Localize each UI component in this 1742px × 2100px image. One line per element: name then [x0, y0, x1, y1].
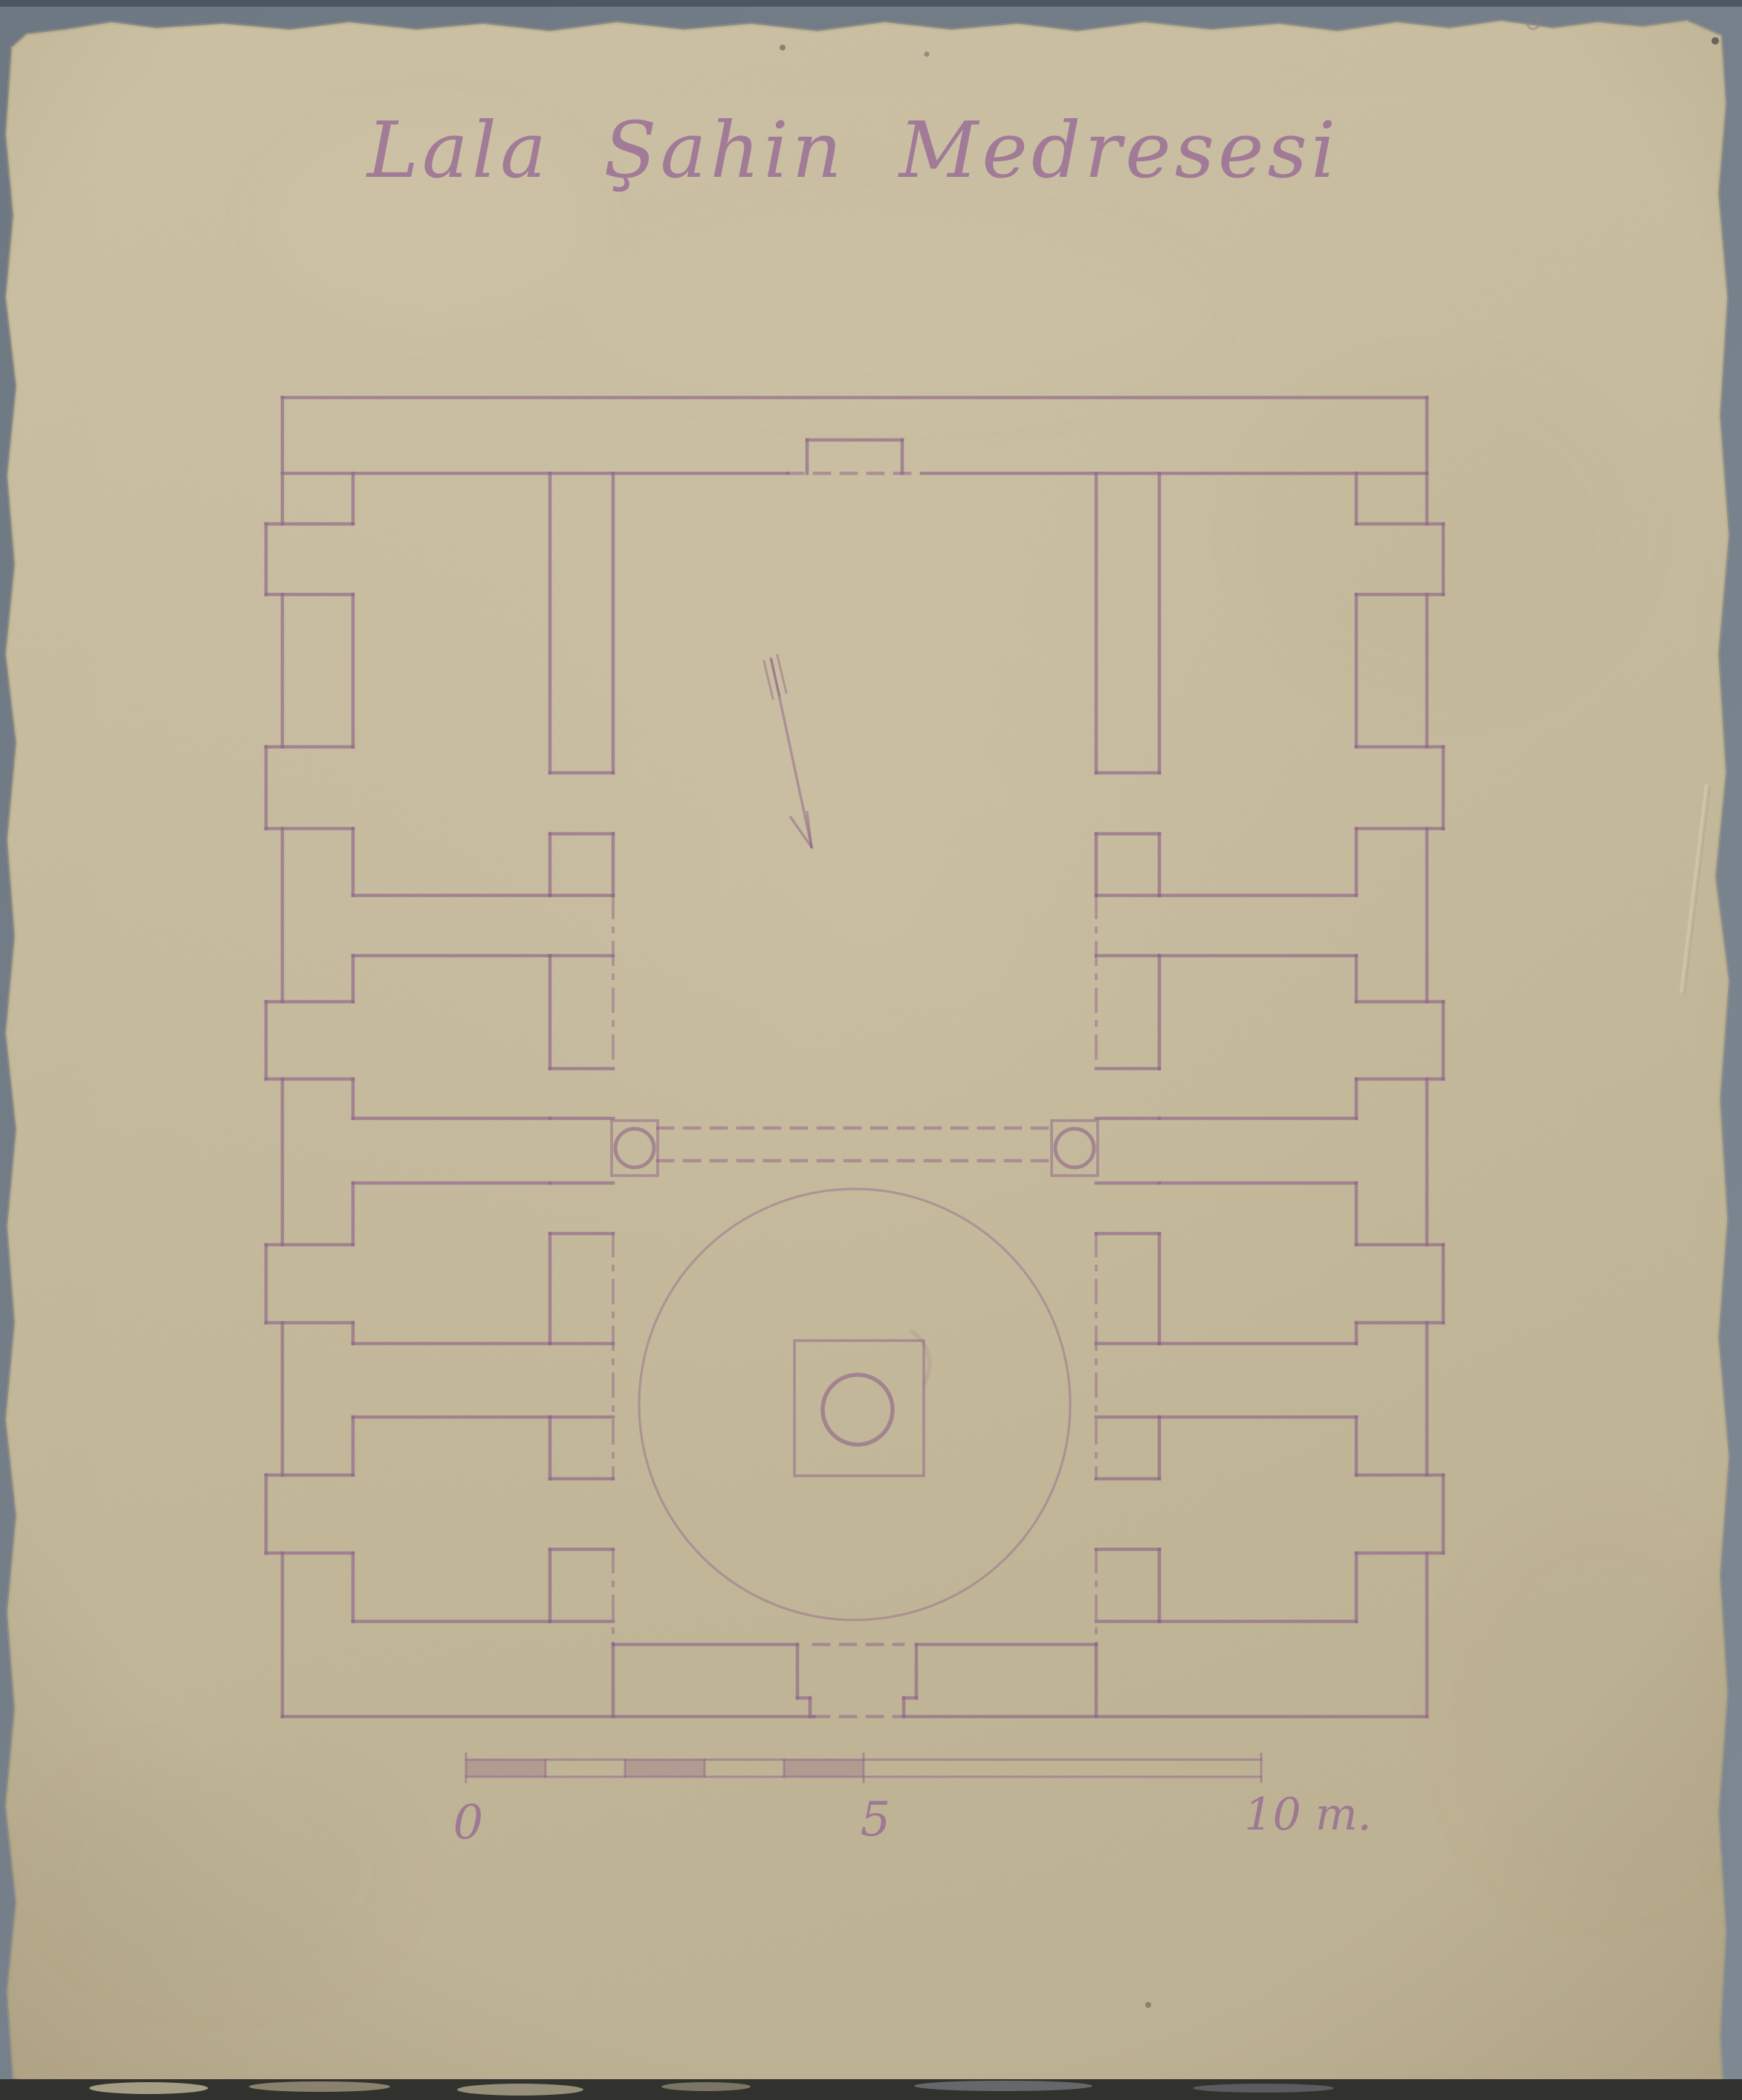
- photo-top-edge-strip: [0, 0, 1742, 7]
- scale-label-0: 0: [453, 1795, 484, 1850]
- scanned-plan-photo: Lala Şahin Medresesi 0 5 10 m.: [0, 0, 1742, 2100]
- drawing-title: Lala Şahin Medresesi: [366, 105, 1339, 195]
- speck-mark: [925, 52, 930, 57]
- scale-label-5: 5: [861, 1792, 891, 1847]
- speck-mark: [1145, 2002, 1151, 2008]
- floor-plan-drawing: Lala Şahin Medresesi 0 5 10 m.: [0, 0, 1742, 2100]
- scale-bar-filled-unit: [466, 1760, 545, 1777]
- scale-label-10m: 10 m.: [1244, 1789, 1371, 1841]
- speck-mark: [1712, 37, 1719, 45]
- paper-sheet: [0, 0, 1742, 2100]
- scale-bar-filled-unit: [625, 1760, 705, 1777]
- speck-mark: [780, 45, 786, 51]
- scale-bar-filled-unit: [784, 1760, 864, 1777]
- photo-bottom-strip: [0, 2079, 1742, 2100]
